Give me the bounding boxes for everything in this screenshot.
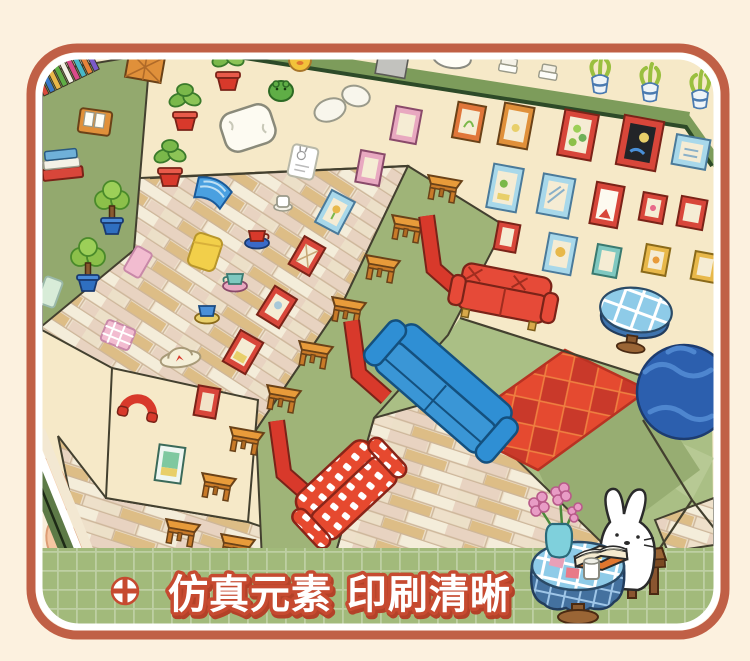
bunny-card-sticker — [287, 144, 319, 181]
product-image: 仿真元素 印刷清晰 仿真元素 印刷清晰 — [0, 0, 750, 661]
ledge-plant — [691, 71, 709, 109]
card-photo-area: 仿真元素 印刷清晰 仿真元素 印刷清晰 — [21, 40, 731, 628]
cross-circle-icon — [112, 578, 138, 604]
book-box-sticker — [77, 108, 112, 136]
cup — [584, 558, 599, 579]
ledge-plant — [641, 64, 659, 102]
ledge-plant — [591, 56, 609, 94]
white-cup-sticker — [274, 196, 292, 211]
red-frame-sticker — [194, 385, 221, 418]
painting-sticker — [155, 444, 186, 483]
banner-text: 仿真元素 印刷清晰 — [168, 572, 511, 618]
book-stack-sticker — [40, 148, 83, 181]
green-frog-sticker — [269, 81, 293, 101]
sticker-book-photo: 仿真元素 印刷清晰 仿真元素 印刷清晰 — [0, 0, 750, 661]
